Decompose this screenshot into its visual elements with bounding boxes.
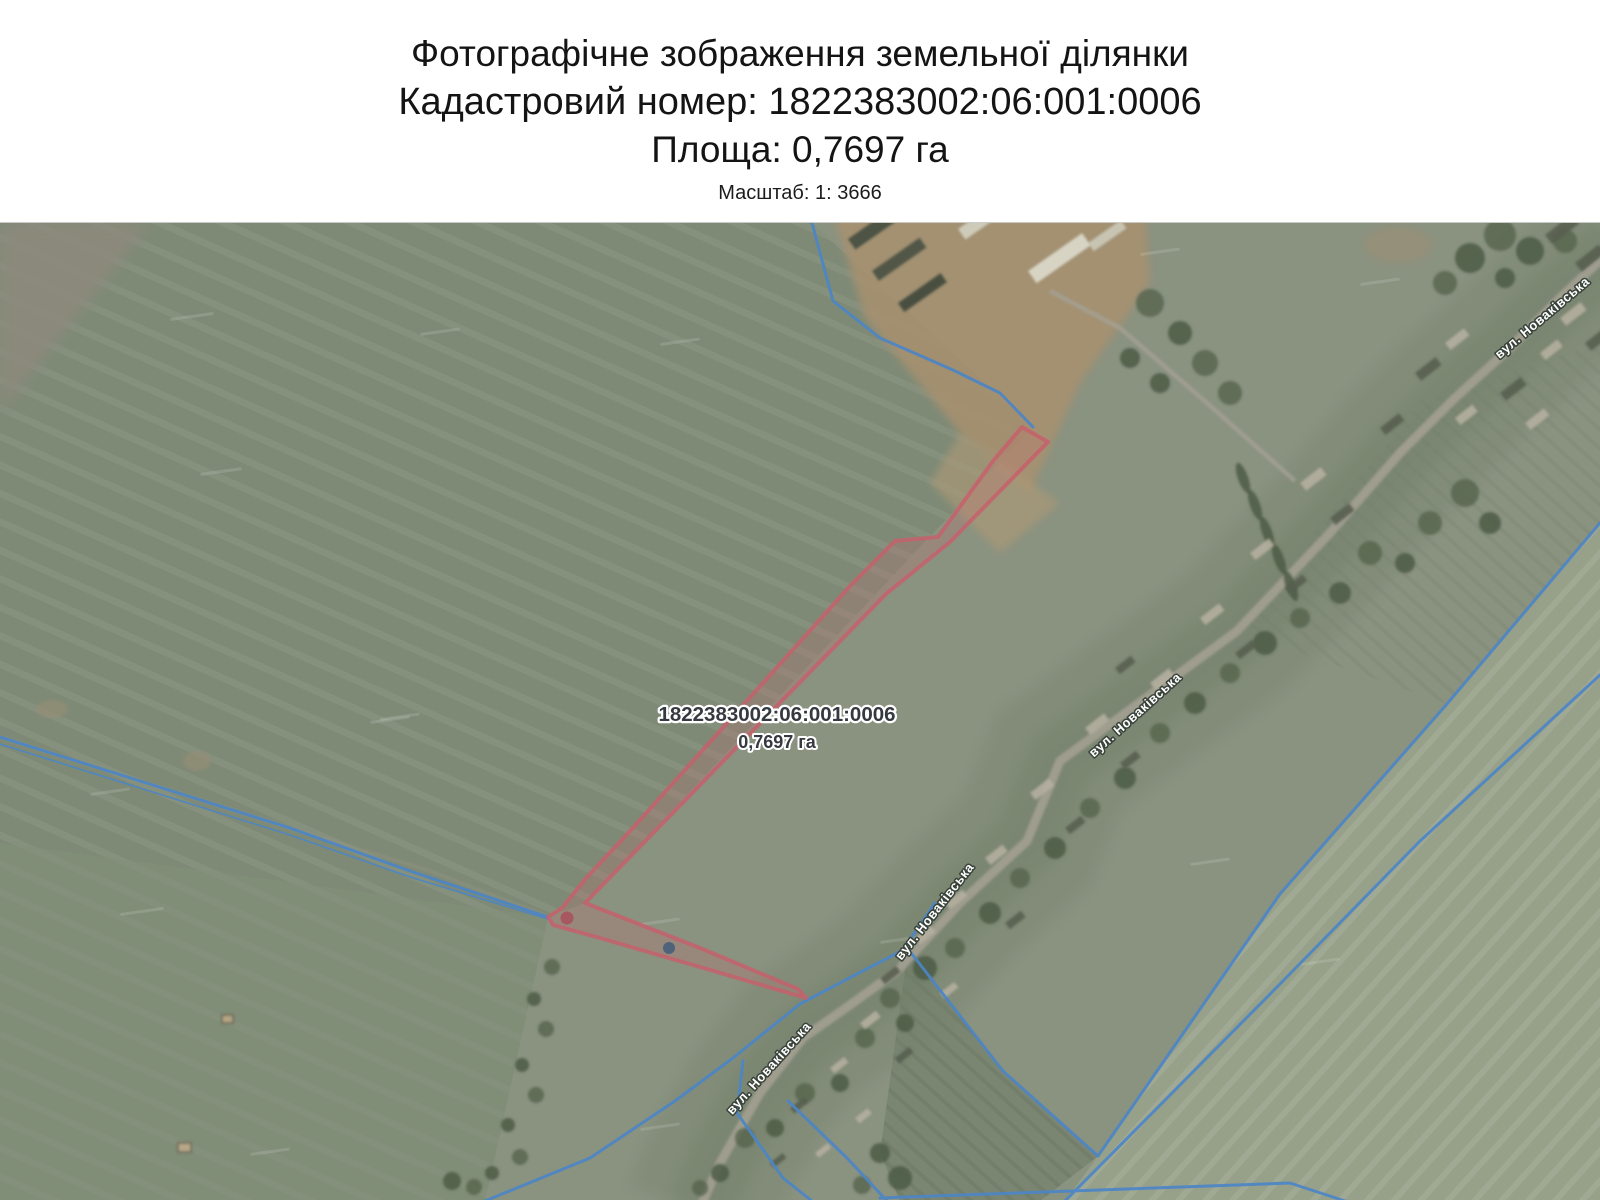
satellite-map: вул. Новаківська вул. Новаківська вул. Н…	[0, 222, 1600, 1200]
brown-patch-top-right	[1364, 227, 1432, 263]
vertex-marker	[663, 942, 675, 954]
parcel-area-label: 0,7697 га	[738, 732, 817, 752]
page-title: Фотографічне зображення земельної ділянк…	[0, 30, 1600, 78]
satellite-map-svg: вул. Новаківська вул. Новаківська вул. Н…	[0, 223, 1600, 1200]
parcel-number-label: 1822383002:06:001:0006	[658, 703, 895, 726]
cadastral-report-page: Фотографічне зображення земельної ділянк…	[0, 0, 1600, 1200]
scale-line: Масштаб: 1: 3666	[0, 178, 1600, 208]
report-header: Фотографічне зображення земельної ділянк…	[0, 0, 1600, 222]
area-line: Площа: 0,7697 га	[0, 126, 1600, 174]
vertex-marker	[561, 912, 574, 925]
cadastral-number-line: Кадастровий номер: 1822383002:06:001:000…	[0, 78, 1600, 126]
